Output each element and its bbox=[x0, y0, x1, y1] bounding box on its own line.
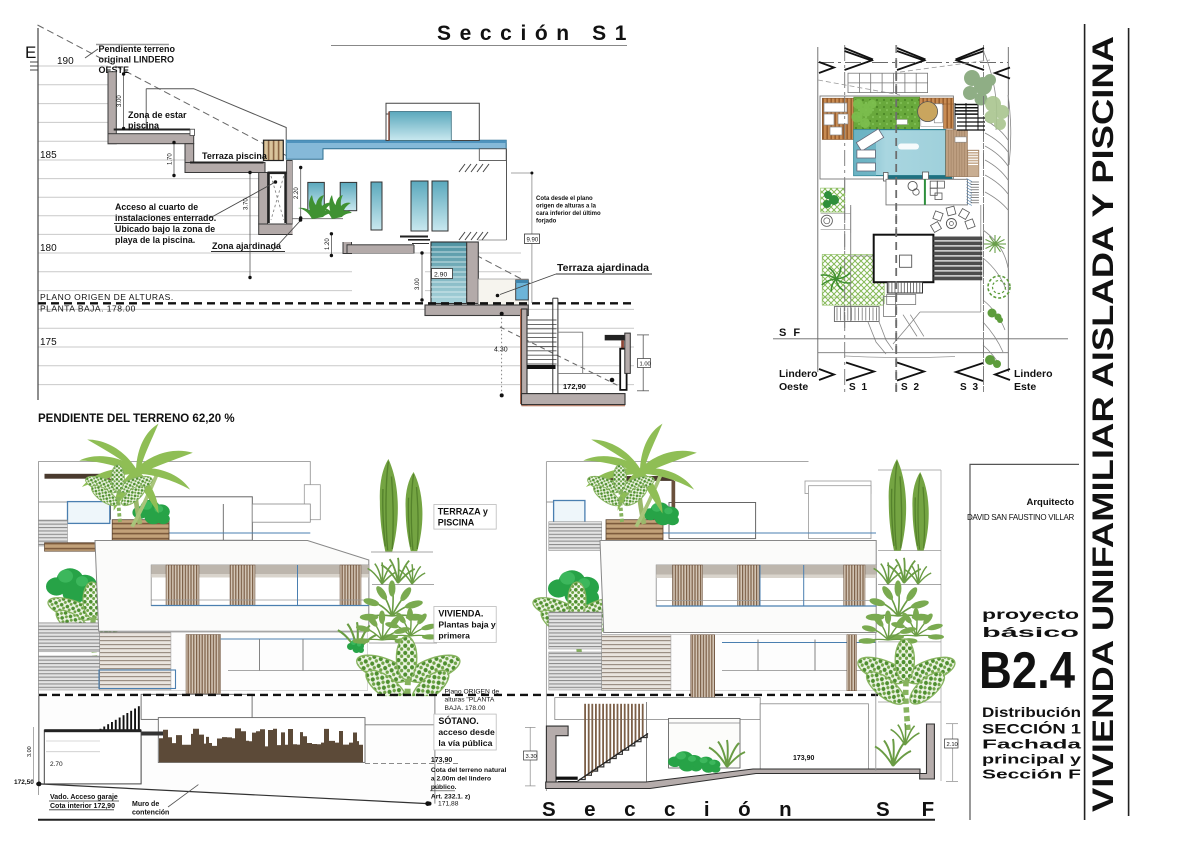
svg-text:9.90: 9.90 bbox=[527, 238, 539, 244]
svg-text:S 2: S 2 bbox=[901, 382, 921, 393]
svg-text:3.30: 3.30 bbox=[526, 754, 537, 760]
svg-text:TERRAZA y: TERRAZA y bbox=[438, 507, 488, 517]
svg-text:2.20: 2.20 bbox=[294, 187, 300, 199]
svg-text:173,90: 173,90 bbox=[793, 755, 815, 762]
svg-text:Lindero: Lindero bbox=[779, 368, 818, 380]
svg-text:4.30: 4.30 bbox=[494, 347, 508, 354]
svg-text:PENDIENTE DEL TERRENO 62,20 %: PENDIENTE DEL TERRENO 62,20 % bbox=[38, 413, 235, 425]
svg-text:proyecto: proyecto bbox=[982, 607, 1079, 622]
svg-text:E: E bbox=[25, 43, 36, 62]
svg-text:175: 175 bbox=[40, 337, 57, 348]
svg-text:172,90: 172,90 bbox=[563, 382, 586, 391]
svg-text:principal y: principal y bbox=[982, 752, 1082, 767]
svg-text:2.10: 2.10 bbox=[947, 742, 958, 748]
svg-text:Sección F: Sección F bbox=[982, 767, 1081, 782]
svg-text:VIVIENDA.: VIVIENDA. bbox=[438, 609, 483, 619]
svg-text:3.00: 3.00 bbox=[415, 278, 421, 290]
svg-text:3.00: 3.00 bbox=[117, 95, 123, 107]
svg-text:playa de la piscina.: playa de la piscina. bbox=[115, 235, 195, 245]
svg-text:Zona de estar: Zona de estar bbox=[128, 110, 187, 120]
svg-text:Sección S1: Sección S1 bbox=[437, 22, 635, 45]
svg-text:Cota interior 172,90: Cota interior 172,90 bbox=[50, 803, 115, 810]
svg-text:173,90: 173,90 bbox=[431, 757, 453, 764]
svg-text:PLANO ORIGEN DE ALTURAS.: PLANO ORIGEN DE ALTURAS. bbox=[40, 292, 174, 302]
svg-text:S 1: S 1 bbox=[849, 382, 869, 393]
svg-text:Cota del terreno natural: Cota del terreno natural bbox=[431, 767, 507, 774]
svg-text:SF: SF bbox=[876, 798, 966, 821]
svg-text:origen de alturas a la: origen de alturas a la bbox=[536, 204, 597, 210]
svg-text:primera: primera bbox=[438, 631, 470, 641]
svg-text:2.90: 2.90 bbox=[434, 272, 447, 279]
svg-text:piscina: piscina bbox=[128, 121, 160, 131]
svg-text:contención: contención bbox=[132, 810, 169, 817]
svg-text:B2.4: B2.4 bbox=[979, 642, 1075, 700]
svg-text:1.70: 1.70 bbox=[168, 153, 174, 165]
svg-text:Acceso al cuarto de: Acceso al cuarto de bbox=[115, 202, 198, 212]
svg-text:cara inferior del último: cara inferior del último bbox=[536, 211, 601, 217]
svg-text:Distribución: Distribución bbox=[982, 705, 1081, 720]
svg-text:forjado: forjado bbox=[536, 219, 557, 225]
svg-text:Este: Este bbox=[1014, 381, 1036, 393]
svg-text:Art. 232.1. z): Art. 232.1. z) bbox=[431, 794, 470, 801]
svg-text:S 3: S 3 bbox=[960, 382, 980, 393]
svg-text:acceso desde: acceso desde bbox=[438, 727, 495, 737]
svg-text:SECCIÓN 1: SECCIÓN 1 bbox=[982, 722, 1082, 737]
svg-text:VIVIENDA UNIFAMILIAR AISLADA Y: VIVIENDA UNIFAMILIAR AISLADA Y PISCINA bbox=[1087, 36, 1120, 812]
svg-text:Muro de: Muro de bbox=[132, 801, 159, 808]
svg-text:Zona ajardinada: Zona ajardinada bbox=[212, 241, 282, 251]
svg-text:Pendiente terreno: Pendiente terreno bbox=[99, 44, 176, 54]
svg-text:1.20: 1.20 bbox=[325, 238, 331, 250]
svg-text:Ubicado bajo la zona de: Ubicado bajo la zona de bbox=[115, 224, 215, 234]
svg-text:Fachada: Fachada bbox=[982, 737, 1082, 752]
svg-text:Lindero: Lindero bbox=[1014, 368, 1053, 380]
svg-text:Sección: Sección bbox=[542, 798, 820, 821]
svg-text:público.: público. bbox=[431, 784, 457, 791]
svg-text:PISCINA: PISCINA bbox=[438, 518, 475, 528]
svg-text:Plano ORIGEN de: Plano ORIGEN de bbox=[445, 689, 500, 696]
svg-text:Plantas baja y: Plantas baja y bbox=[438, 620, 496, 630]
svg-text:DAVID SAN FAUSTINO VILLAR: DAVID SAN FAUSTINO VILLAR bbox=[967, 513, 1075, 522]
svg-text:S F: S F bbox=[779, 327, 802, 339]
svg-text:2.70: 2.70 bbox=[50, 761, 63, 768]
svg-text:171,88: 171,88 bbox=[438, 801, 459, 808]
svg-text:Oeste: Oeste bbox=[779, 381, 808, 393]
svg-text:original LINDERO: original LINDERO bbox=[99, 55, 175, 65]
svg-text:190: 190 bbox=[57, 56, 74, 67]
svg-text:Cota desde el plano: Cota desde el plano bbox=[536, 196, 593, 202]
svg-text:SÓTANO.: SÓTANO. bbox=[438, 715, 478, 726]
svg-text:Vado. Acceso garaje: Vado. Acceso garaje bbox=[50, 794, 118, 801]
svg-text:a 2.00m del lindero: a 2.00m del lindero bbox=[431, 776, 491, 783]
svg-text:3.00: 3.00 bbox=[27, 746, 33, 757]
svg-text:185: 185 bbox=[40, 150, 57, 161]
svg-text:la vía pública: la vía pública bbox=[438, 738, 492, 748]
svg-text:180: 180 bbox=[40, 243, 57, 254]
svg-text:alturas "PLANTA: alturas "PLANTA bbox=[445, 697, 495, 704]
svg-text:instalaciones enterrado.: instalaciones enterrado. bbox=[115, 213, 216, 223]
svg-text:3.70: 3.70 bbox=[244, 198, 250, 210]
svg-text:PLANTA BAJA. 178.00: PLANTA BAJA. 178.00 bbox=[40, 304, 136, 314]
svg-text:172,50: 172,50 bbox=[14, 779, 34, 786]
svg-text:1.00: 1.00 bbox=[640, 362, 651, 368]
svg-text:Terraza piscina: Terraza piscina bbox=[202, 151, 268, 161]
svg-text:BAJA. 178.00: BAJA. 178.00 bbox=[445, 705, 486, 712]
svg-text:básico: básico bbox=[982, 625, 1079, 640]
svg-text:Terraza ajardinada: Terraza ajardinada bbox=[557, 262, 649, 274]
svg-text:Arquitecto: Arquitecto bbox=[1027, 497, 1075, 508]
